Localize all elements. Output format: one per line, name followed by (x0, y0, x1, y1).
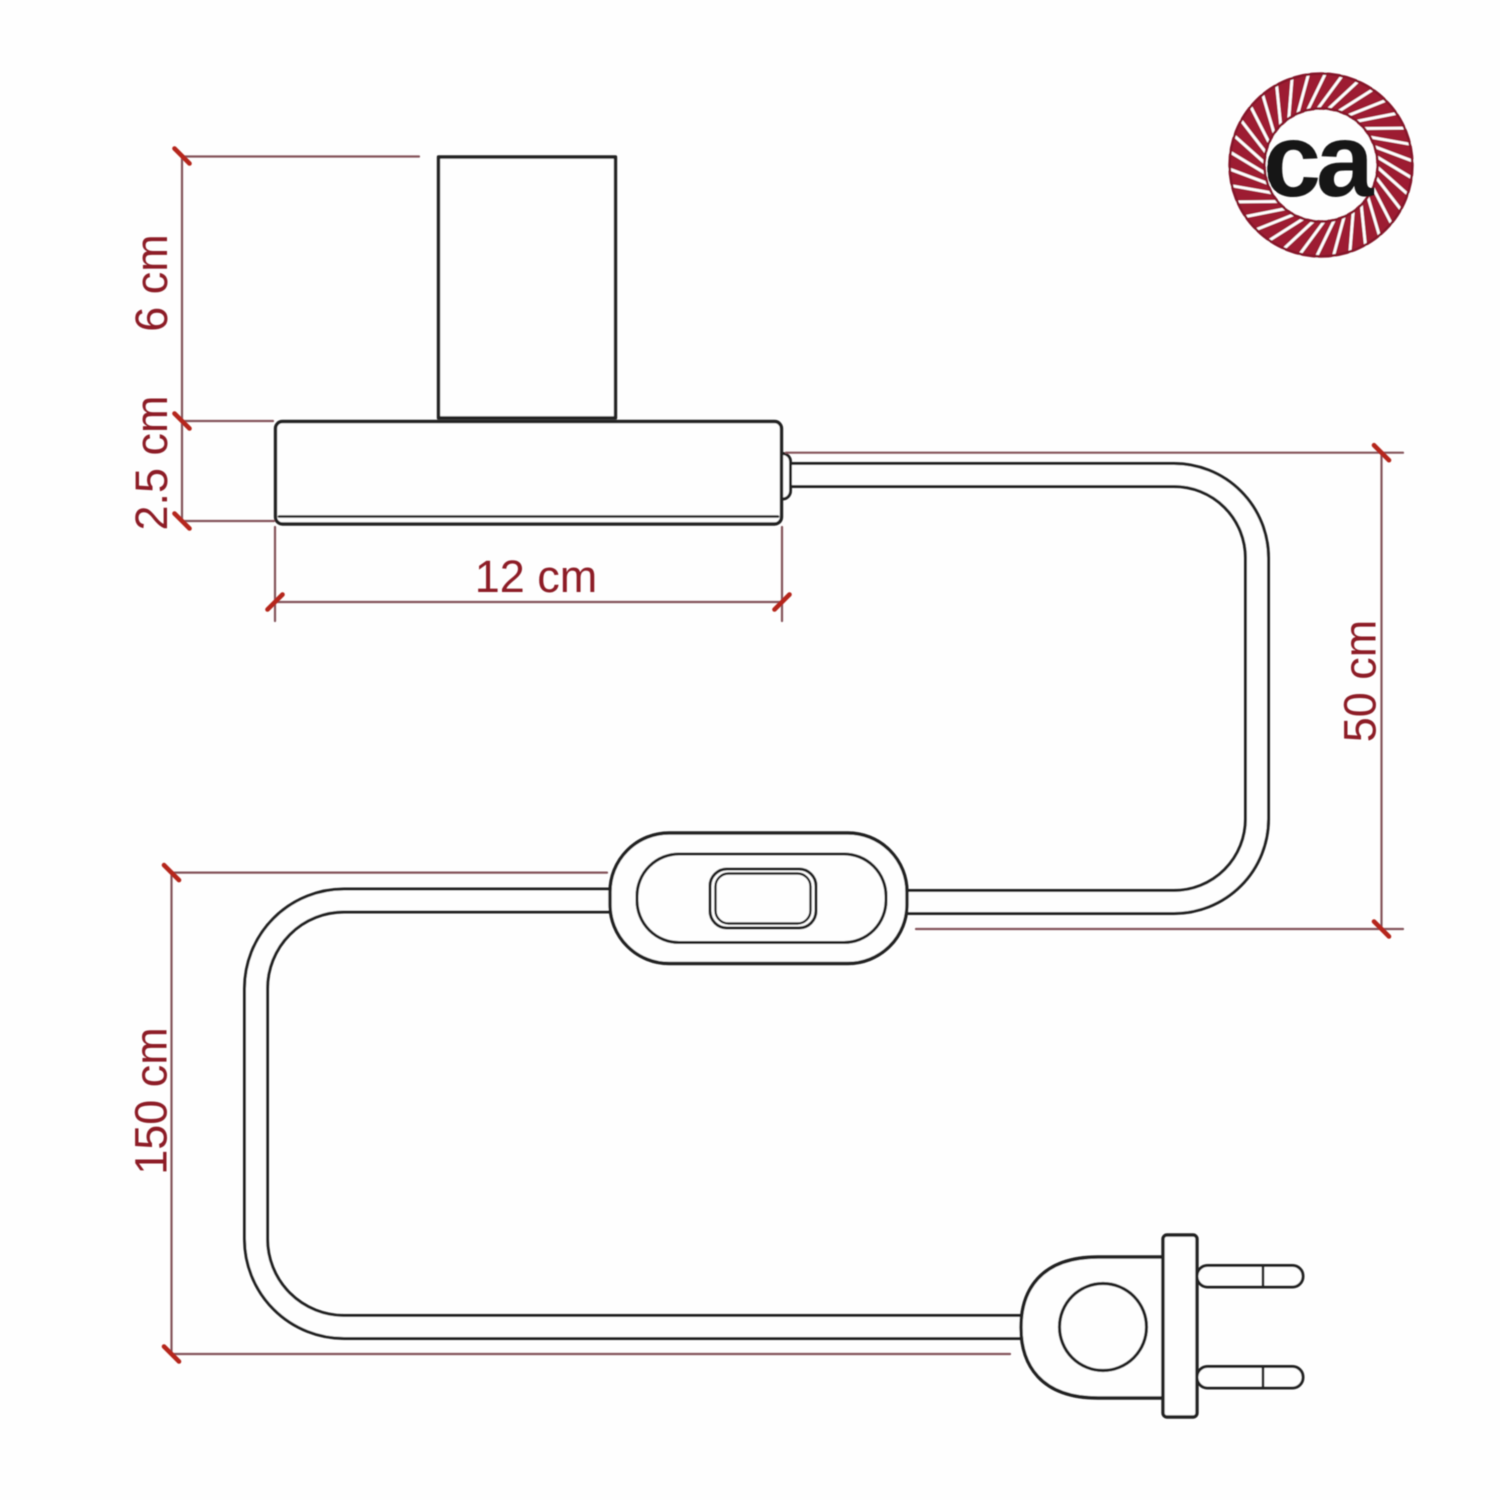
svg-text:ca: ca (1263, 103, 1375, 219)
svg-text:12 cm: 12 cm (475, 551, 598, 602)
svg-text:50 cm: 50 cm (1335, 620, 1386, 743)
svg-text:6 cm: 6 cm (126, 234, 177, 332)
svg-text:2.5 cm: 2.5 cm (126, 395, 177, 530)
svg-text:150 cm: 150 cm (126, 1027, 177, 1175)
